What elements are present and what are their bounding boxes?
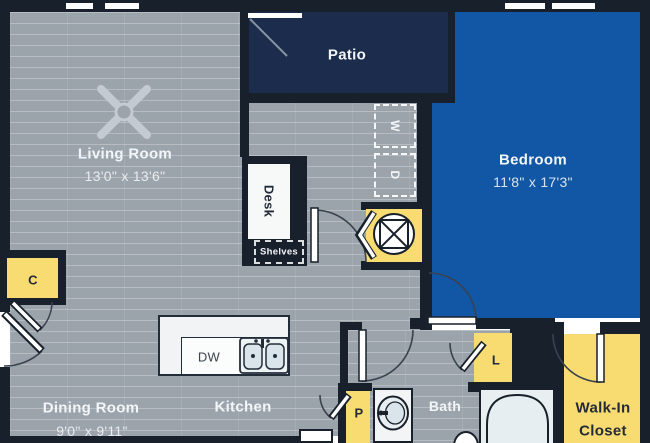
walkin-label-line2: Closet — [579, 423, 627, 440]
living-room-dims: 13'0" x 13'6" — [85, 168, 166, 184]
fixtures-layer — [0, 0, 650, 443]
desk-label: Desk — [262, 185, 277, 217]
dining-room-label: Dining Room — [43, 400, 140, 417]
toilet-icon — [454, 432, 478, 443]
patio-door-leaf — [250, 19, 287, 56]
water-heater-icon — [374, 214, 414, 254]
kitchen-label: Kitchen — [214, 399, 271, 416]
bath-door — [359, 330, 413, 381]
bedroom-dims: 11'8" x 17'3" — [493, 174, 573, 190]
bath-label: Bath — [429, 398, 461, 414]
patio-label: Patio — [328, 47, 366, 64]
closet-c-label: C — [28, 273, 38, 288]
bedroom-label: Bedroom — [499, 152, 567, 169]
wh-bifold-doors — [359, 212, 374, 258]
walkin-label-line1: Walk-In — [576, 400, 631, 417]
entry-door — [4, 313, 42, 366]
dryer-label: D — [388, 171, 402, 180]
closet-p-label: P — [355, 406, 364, 421]
p-closet-door — [320, 395, 349, 418]
dishwasher-label: DW — [198, 350, 220, 365]
bedroom-door — [428, 273, 476, 324]
ceiling-fan-icon — [101, 89, 147, 135]
walkin-door — [553, 334, 604, 382]
kitchen-sink-icon — [240, 338, 288, 373]
dining-room-dims: 9'0" x 9'11" — [56, 423, 128, 439]
closet-l-label: L — [492, 353, 500, 368]
bathtub-icon — [487, 395, 548, 443]
floorplan: Living Room 13'0" x 13'6" Patio Bedroom … — [0, 0, 650, 443]
shelves-label: Shelves — [260, 247, 298, 258]
washer-label: W — [388, 120, 402, 132]
living-room-label: Living Room — [78, 146, 172, 163]
l-closet-door — [450, 343, 484, 370]
bath-sink-icon — [378, 397, 408, 430]
